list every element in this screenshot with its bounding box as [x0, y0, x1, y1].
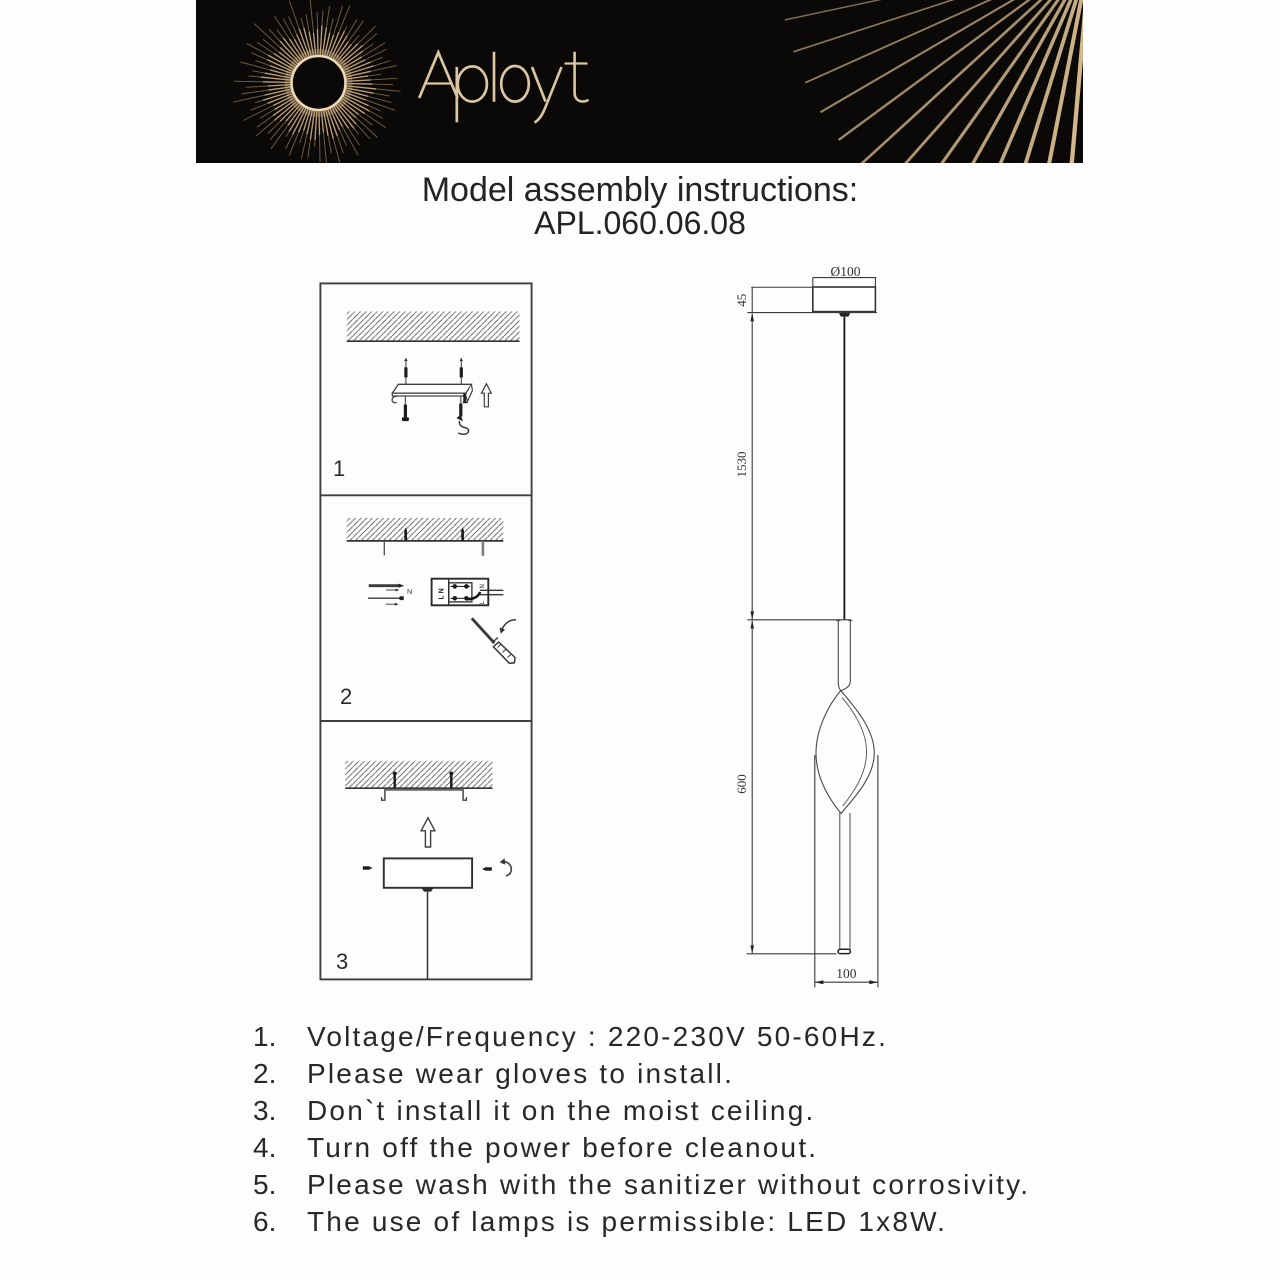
svg-text:3: 3: [336, 949, 348, 974]
svg-text:600: 600: [734, 774, 749, 794]
svg-text:2: 2: [340, 684, 352, 709]
svg-text:45: 45: [734, 294, 749, 307]
svg-text:1530: 1530: [734, 452, 749, 478]
svg-text:Ø100: Ø100: [831, 264, 861, 279]
svg-text:N: N: [407, 589, 412, 596]
svg-text:100: 100: [836, 966, 857, 981]
svg-text:L N: L N: [439, 588, 446, 599]
svg-text:N: N: [480, 584, 486, 588]
svg-text:1: 1: [333, 456, 345, 481]
